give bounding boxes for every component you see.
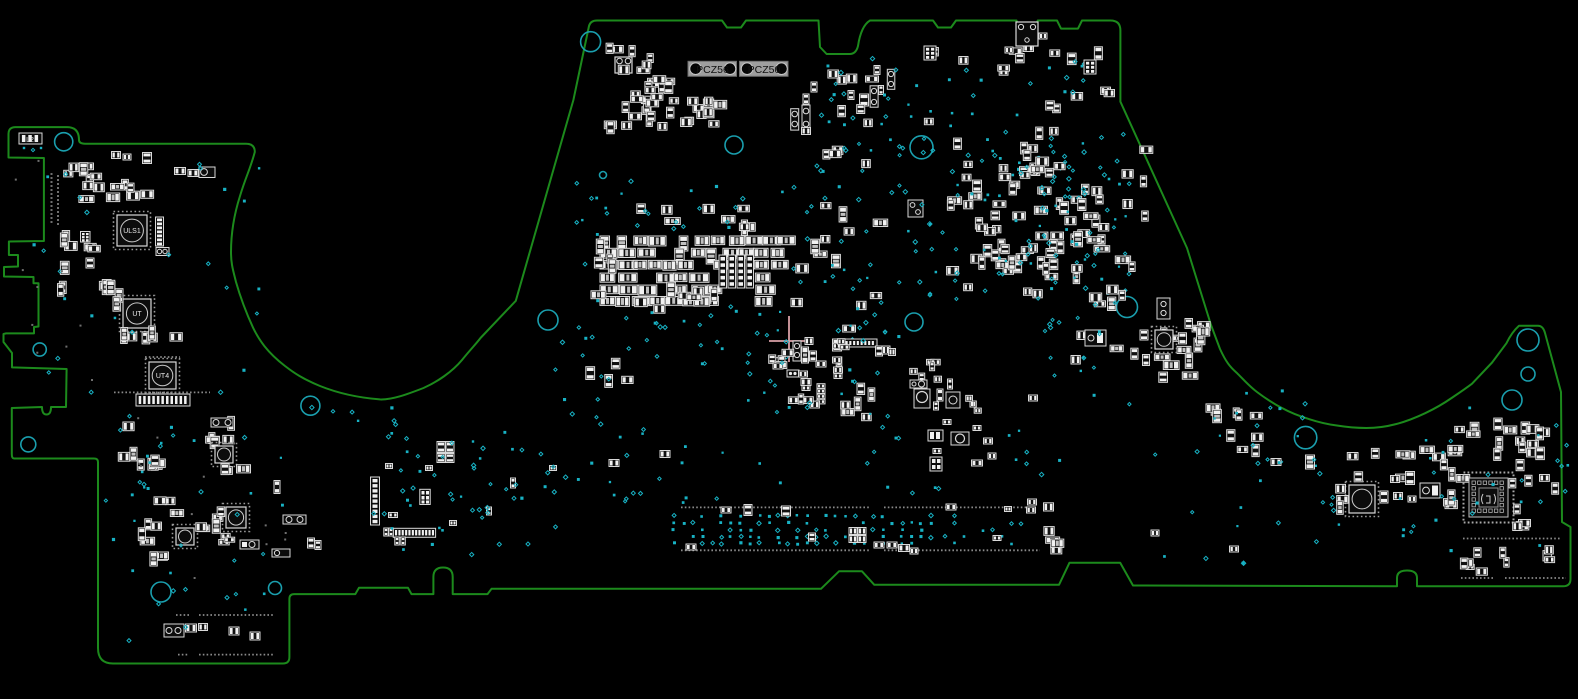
svg-text:UT4: UT4: [156, 373, 169, 380]
svg-text:L2: L2: [26, 137, 34, 144]
svg-text:PCZ56: PCZ56: [696, 64, 729, 76]
svg-text:PCZ50: PCZ50: [748, 64, 781, 76]
svg-text:ULS1: ULS1: [123, 228, 141, 235]
svg-text:UT: UT: [132, 311, 142, 318]
